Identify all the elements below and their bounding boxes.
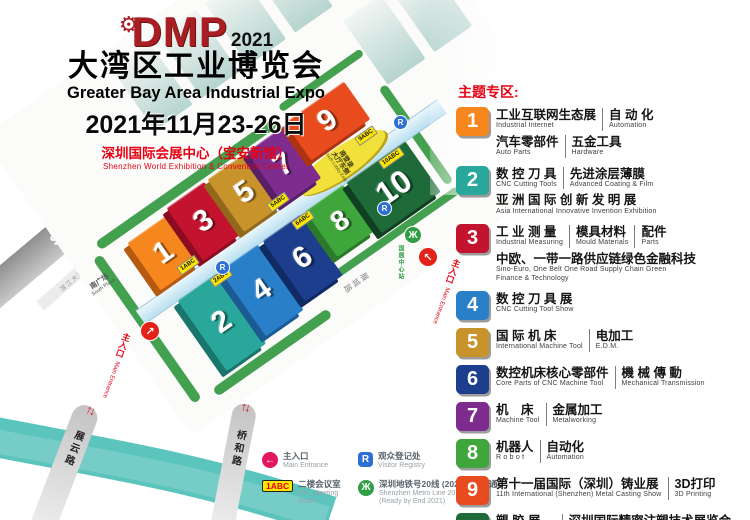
zone-row: 机器人R o b o t自动化Automation [496, 440, 590, 463]
zone-segment-cn: 第十一届国际（深圳）铸业展 [496, 477, 662, 491]
zone-segment-en: Advanced Coating & Film [570, 181, 654, 189]
zone-item-8: 8机器人R o b o t自动化Automation [456, 439, 748, 468]
hall-number: 10 [368, 162, 418, 213]
key-main-entrance-cn: 主入口 [283, 452, 328, 462]
zone-segment-cn: 金属加工 [553, 403, 603, 417]
zone-row: 工业互联网生态展Industrial Internet自 动 化Automati… [496, 108, 659, 131]
main-entrance-icon: ← [262, 452, 278, 468]
title-en: Greater Bay Area Industrial Expo [50, 84, 342, 102]
zone-segment-cn: 中欧、一带一路供应链绿色金融科技 [496, 252, 696, 266]
zone-segment-en: International Machine Tool [496, 343, 583, 351]
metro-line-icon: Ж [358, 480, 374, 496]
poster-header: ⚙ DMP 2021 大湾区工业博览会 Greater Bay Area Ind… [50, 6, 342, 171]
zone-segment-cn: 先进涂层薄膜 [570, 167, 654, 181]
zone-segment-cn: 模具材料 [576, 225, 628, 239]
hall-number: 5 [228, 174, 261, 211]
zone-segment-cn: 自 动 化 [609, 108, 653, 122]
venue-en: Shenzhen World Exhibition & Convention C… [50, 162, 342, 171]
key-meeting-room: 1ABC 二楼会议室 2/F., Meeting Room [262, 480, 354, 506]
event-dates: 2021年11月23-26日 [50, 105, 342, 141]
key-registry-en: Visitor Registry [378, 462, 425, 470]
theme-zones-title: 主题专区: [458, 82, 748, 102]
zone-segment: 自 动 化Automation [602, 108, 659, 131]
zone-segment-en: Auto Parts [496, 149, 559, 157]
zone-item-3: 3工 业 测 量Industrial Measuring模具材料Mould Ma… [456, 224, 748, 283]
zone-segment: 机 床Machine Tool [496, 403, 546, 426]
hall-number: 2 [205, 303, 238, 340]
zone-segment-cn: 工 业 测 量 [496, 225, 563, 239]
zone-item-5: 5国 际 机 床International Machine Tool电加工E.D… [456, 328, 748, 357]
zone-rows: 机器人R o b o t自动化Automation [496, 439, 590, 468]
zone-badge-9: 9 [456, 476, 489, 505]
key-registry-cn: 观众登记处 [378, 452, 425, 462]
zone-segment-en: Automation [609, 122, 653, 130]
key-main-entrance-en: Main Entrance [283, 462, 328, 470]
zone-segment-cn: 机 床 [496, 403, 540, 417]
metro-station-label: 国展中心站 [396, 245, 405, 280]
zone-item-7: 7机 床Machine Tool金属加工Metalworking [456, 402, 748, 431]
zone-segment: 工业互联网生态展Industrial Internet [496, 108, 602, 131]
zone-badge-3: 3 [456, 224, 489, 253]
visitor-registry-icon: R [358, 452, 373, 467]
zone-badge-5: 5 [456, 328, 489, 357]
zone-segment-cn: 深圳国际精密注塑技术展览会 [569, 514, 742, 520]
zone-badge-4: 4 [456, 291, 489, 320]
zone-segment-cn: 国 际 机 床 [496, 329, 583, 343]
hall-number: 8 [325, 203, 356, 238]
hall-number: 1 [147, 234, 180, 271]
zone-segment-cn: 配件 [641, 225, 666, 239]
zone-segment-cn: 数 控 刀 具 展 [496, 292, 574, 306]
zone-segment-cn: 电加工 [596, 329, 634, 343]
zone-segment: 第十一届国际（深圳）铸业展11th International (Shenzhe… [496, 477, 668, 500]
zone-item-9: 9第十一届国际（深圳）铸业展11th International (Shenzh… [456, 476, 748, 505]
metro-station-icon: Ж [404, 226, 422, 244]
key-meeting-cn: 二楼会议室 [298, 480, 354, 490]
zone-segment: 3D打印3D Printing [668, 477, 722, 500]
dmp-logo: ⚙ DMP 2021 [50, 6, 342, 50]
zone-segment-en: 3D Printing [675, 491, 716, 499]
zone-segment-en: Asia International Innovative Invention … [496, 208, 657, 216]
venue-cn: 深圳国际会展中心（宝安新馆） [50, 142, 342, 162]
zone-segment-en: CNC Cutting Tools [496, 181, 557, 189]
title-cn: 大湾区工业博览会 [50, 50, 342, 84]
zone-segment: 機 械 傳 動Mechanical Transmission [615, 366, 711, 389]
theme-zones-panel: 主题专区: 1工业互联网生态展Industrial Internet自 动 化A… [456, 82, 748, 520]
zone-badge-1: 1 [456, 107, 489, 136]
zone-row: 机 床Machine Tool金属加工Metalworking [496, 403, 609, 426]
zone-segment: 配件Parts [634, 225, 672, 248]
zone-segment: 汽车零部件Auto Parts [496, 135, 565, 158]
zone-segment: 深圳国际精密注塑技术展览会Shenzhen Int'l Precision In… [562, 514, 748, 520]
zone-segment-cn: 亚 洲 国 际 创 新 发 明 展 [496, 193, 657, 207]
zone-segment-cn: 五金工具 [572, 135, 622, 149]
registry-point-icon: R [393, 115, 408, 130]
zone-rows: 数控机床核心零部件Core Parts of CNC Machine Tool機… [496, 365, 711, 394]
zone-segment-cn: 数控机床核心零部件 [496, 366, 609, 380]
zone-row: 工 业 测 量Industrial Measuring模具材料Mould Mat… [496, 225, 702, 248]
zone-row: 国 际 机 床International Machine Tool电加工E.D.… [496, 329, 639, 352]
zone-segment-cn: 機 械 傳 動 [622, 366, 705, 380]
zone-segment: 金属加工Metalworking [546, 403, 609, 426]
zone-segment: 工 业 测 量Industrial Measuring [496, 225, 569, 248]
zone-segment: 数 控 刀 具 展CNC Cutting Tool Show [496, 292, 580, 315]
zone-segment: 亚 洲 国 际 创 新 发 明 展Asia International Inno… [496, 193, 663, 216]
zone-segment-en: Mould Materials [576, 239, 628, 247]
zone-segment: 五金工具Hardware [565, 135, 628, 158]
zone-segment-en: 11th International (Shenzhen) Metal Cast… [496, 491, 662, 499]
zone-item-10: 10塑 胶 展Plastics Exhibition深圳国际精密注塑技术展览会S… [456, 513, 748, 520]
zone-row: 数 控 刀 具CNC Cutting Tools先进涂层薄膜Advanced C… [496, 167, 663, 190]
zone-segment-en: Machine Tool [496, 417, 540, 425]
zone-badge-8: 8 [456, 439, 489, 468]
zone-badge-6: 6 [456, 365, 489, 394]
zone-badge-2: 2 [456, 166, 489, 195]
hall-number: 4 [245, 272, 278, 309]
meeting-room-badge: 1ABC [262, 480, 293, 493]
key-main-entrance: ← 主入口 Main Entrance [262, 452, 354, 470]
registry-point-icon: R [377, 201, 392, 216]
zone-rows: 数 控 刀 具CNC Cutting Tools先进涂层薄膜Advanced C… [496, 166, 663, 217]
zone-rows: 第十一届国际（深圳）铸业展11th International (Shenzhe… [496, 476, 722, 505]
zone-rows: 国 际 机 床International Machine Tool电加工E.D.… [496, 328, 639, 357]
key-meeting-en: 2/F., Meeting Room [298, 490, 354, 506]
zone-segment: 塑 胶 展Plastics Exhibition [496, 514, 562, 520]
zone-segment: 中欧、一带一路供应链绿色金融科技Sino-Euro, One Belt One … [496, 252, 702, 283]
zone-segment-en: Industrial Measuring [496, 239, 563, 247]
zone-segment: 模具材料Mould Materials [569, 225, 634, 248]
zone-segment-cn: 机器人 [496, 440, 534, 454]
logo-year: 2021 [231, 31, 273, 50]
zone-segment-cn: 汽车零部件 [496, 135, 559, 149]
zone-segment-en: CNC Cutting Tool Show [496, 306, 574, 314]
zone-rows: 机 床Machine Tool金属加工Metalworking [496, 402, 609, 431]
main-entrance-arrow-icon: ↖ [418, 247, 438, 267]
expo-map-poster: S3 Highway 沿江高速 滨江大道 滨江大道 展云路 桥和路 ↑↓ ↑↓ … [0, 0, 750, 520]
zone-segment-en: Mechanical Transmission [622, 380, 705, 388]
zone-rows: 工 业 测 量Industrial Measuring模具材料Mould Mat… [496, 224, 702, 283]
main-entrance-arrow-icon: ↗ [140, 321, 160, 341]
zone-segment-cn: 自动化 [547, 440, 585, 454]
zone-segment-cn: 工业互联网生态展 [496, 108, 596, 122]
zone-row: 第十一届国际（深圳）铸业展11th International (Shenzhe… [496, 477, 722, 500]
hall-number: 3 [187, 202, 220, 239]
zone-rows: 工业互联网生态展Industrial Internet自 动 化Automati… [496, 107, 659, 158]
zone-segment-en: Core Parts of CNC Machine Tool [496, 380, 609, 388]
zone-item-4: 4数 控 刀 具 展CNC Cutting Tool Show [456, 291, 748, 320]
registry-point-icon: R [215, 260, 230, 275]
zone-segment-cn: 数 控 刀 具 [496, 167, 557, 181]
zone-segment: 数控机床核心零部件Core Parts of CNC Machine Tool [496, 366, 615, 389]
zone-item-2: 2数 控 刀 具CNC Cutting Tools先进涂层薄膜Advanced … [456, 166, 748, 217]
hall-number: 6 [286, 239, 319, 276]
zone-row: 中欧、一带一路供应链绿色金融科技Sino-Euro, One Belt One … [496, 252, 702, 283]
zone-segment-en: Hardware [572, 149, 622, 157]
zone-segment-en: Sino-Euro, One Belt One Road Supply Chai… [496, 266, 671, 283]
zone-segment: 自动化Automation [540, 440, 591, 463]
zone-rows: 塑 胶 展Plastics Exhibition深圳国际精密注塑技术展览会She… [496, 513, 748, 520]
zone-row: 汽车零部件Auto Parts五金工具Hardware [496, 135, 659, 158]
zone-row: 数控机床核心零部件Core Parts of CNC Machine Tool機… [496, 366, 711, 389]
zone-row: 塑 胶 展Plastics Exhibition深圳国际精密注塑技术展览会She… [496, 514, 748, 520]
zone-row: 亚 洲 国 际 创 新 发 明 展Asia International Inno… [496, 193, 663, 216]
zone-segment-en: Metalworking [553, 417, 603, 425]
zone-segment: 先进涂层薄膜Advanced Coating & Film [563, 167, 660, 190]
zone-item-1: 1工业互联网生态展Industrial Internet自 动 化Automat… [456, 107, 748, 158]
theme-zones-list: 1工业互联网生态展Industrial Internet自 动 化Automat… [456, 107, 748, 520]
zone-segment: 数 控 刀 具CNC Cutting Tools [496, 167, 563, 190]
zone-segment: 国 际 机 床International Machine Tool [496, 329, 589, 352]
zone-row: 数 控 刀 具 展CNC Cutting Tool Show [496, 292, 580, 315]
zone-badge-10: 10 [456, 513, 489, 520]
zone-item-6: 6数控机床核心零部件Core Parts of CNC Machine Tool… [456, 365, 748, 394]
logo-text: DMP [132, 14, 228, 50]
zone-segment: 机器人R o b o t [496, 440, 540, 463]
zone-badge-7: 7 [456, 402, 489, 431]
zone-segment-cn: 塑 胶 展 [496, 514, 556, 520]
zone-segment-en: E.D.M. [596, 343, 634, 351]
zone-segment-en: Parts [641, 239, 666, 247]
zone-segment: 电加工E.D.M. [589, 329, 640, 352]
zone-segment-cn: 3D打印 [675, 477, 716, 491]
zone-segment-en: Automation [547, 454, 585, 462]
zone-rows: 数 控 刀 具 展CNC Cutting Tool Show [496, 291, 580, 320]
gear-icon: ⚙ [119, 14, 139, 36]
zone-segment-en: R o b o t [496, 454, 534, 462]
zone-segment-en: Industrial Internet [496, 122, 596, 130]
